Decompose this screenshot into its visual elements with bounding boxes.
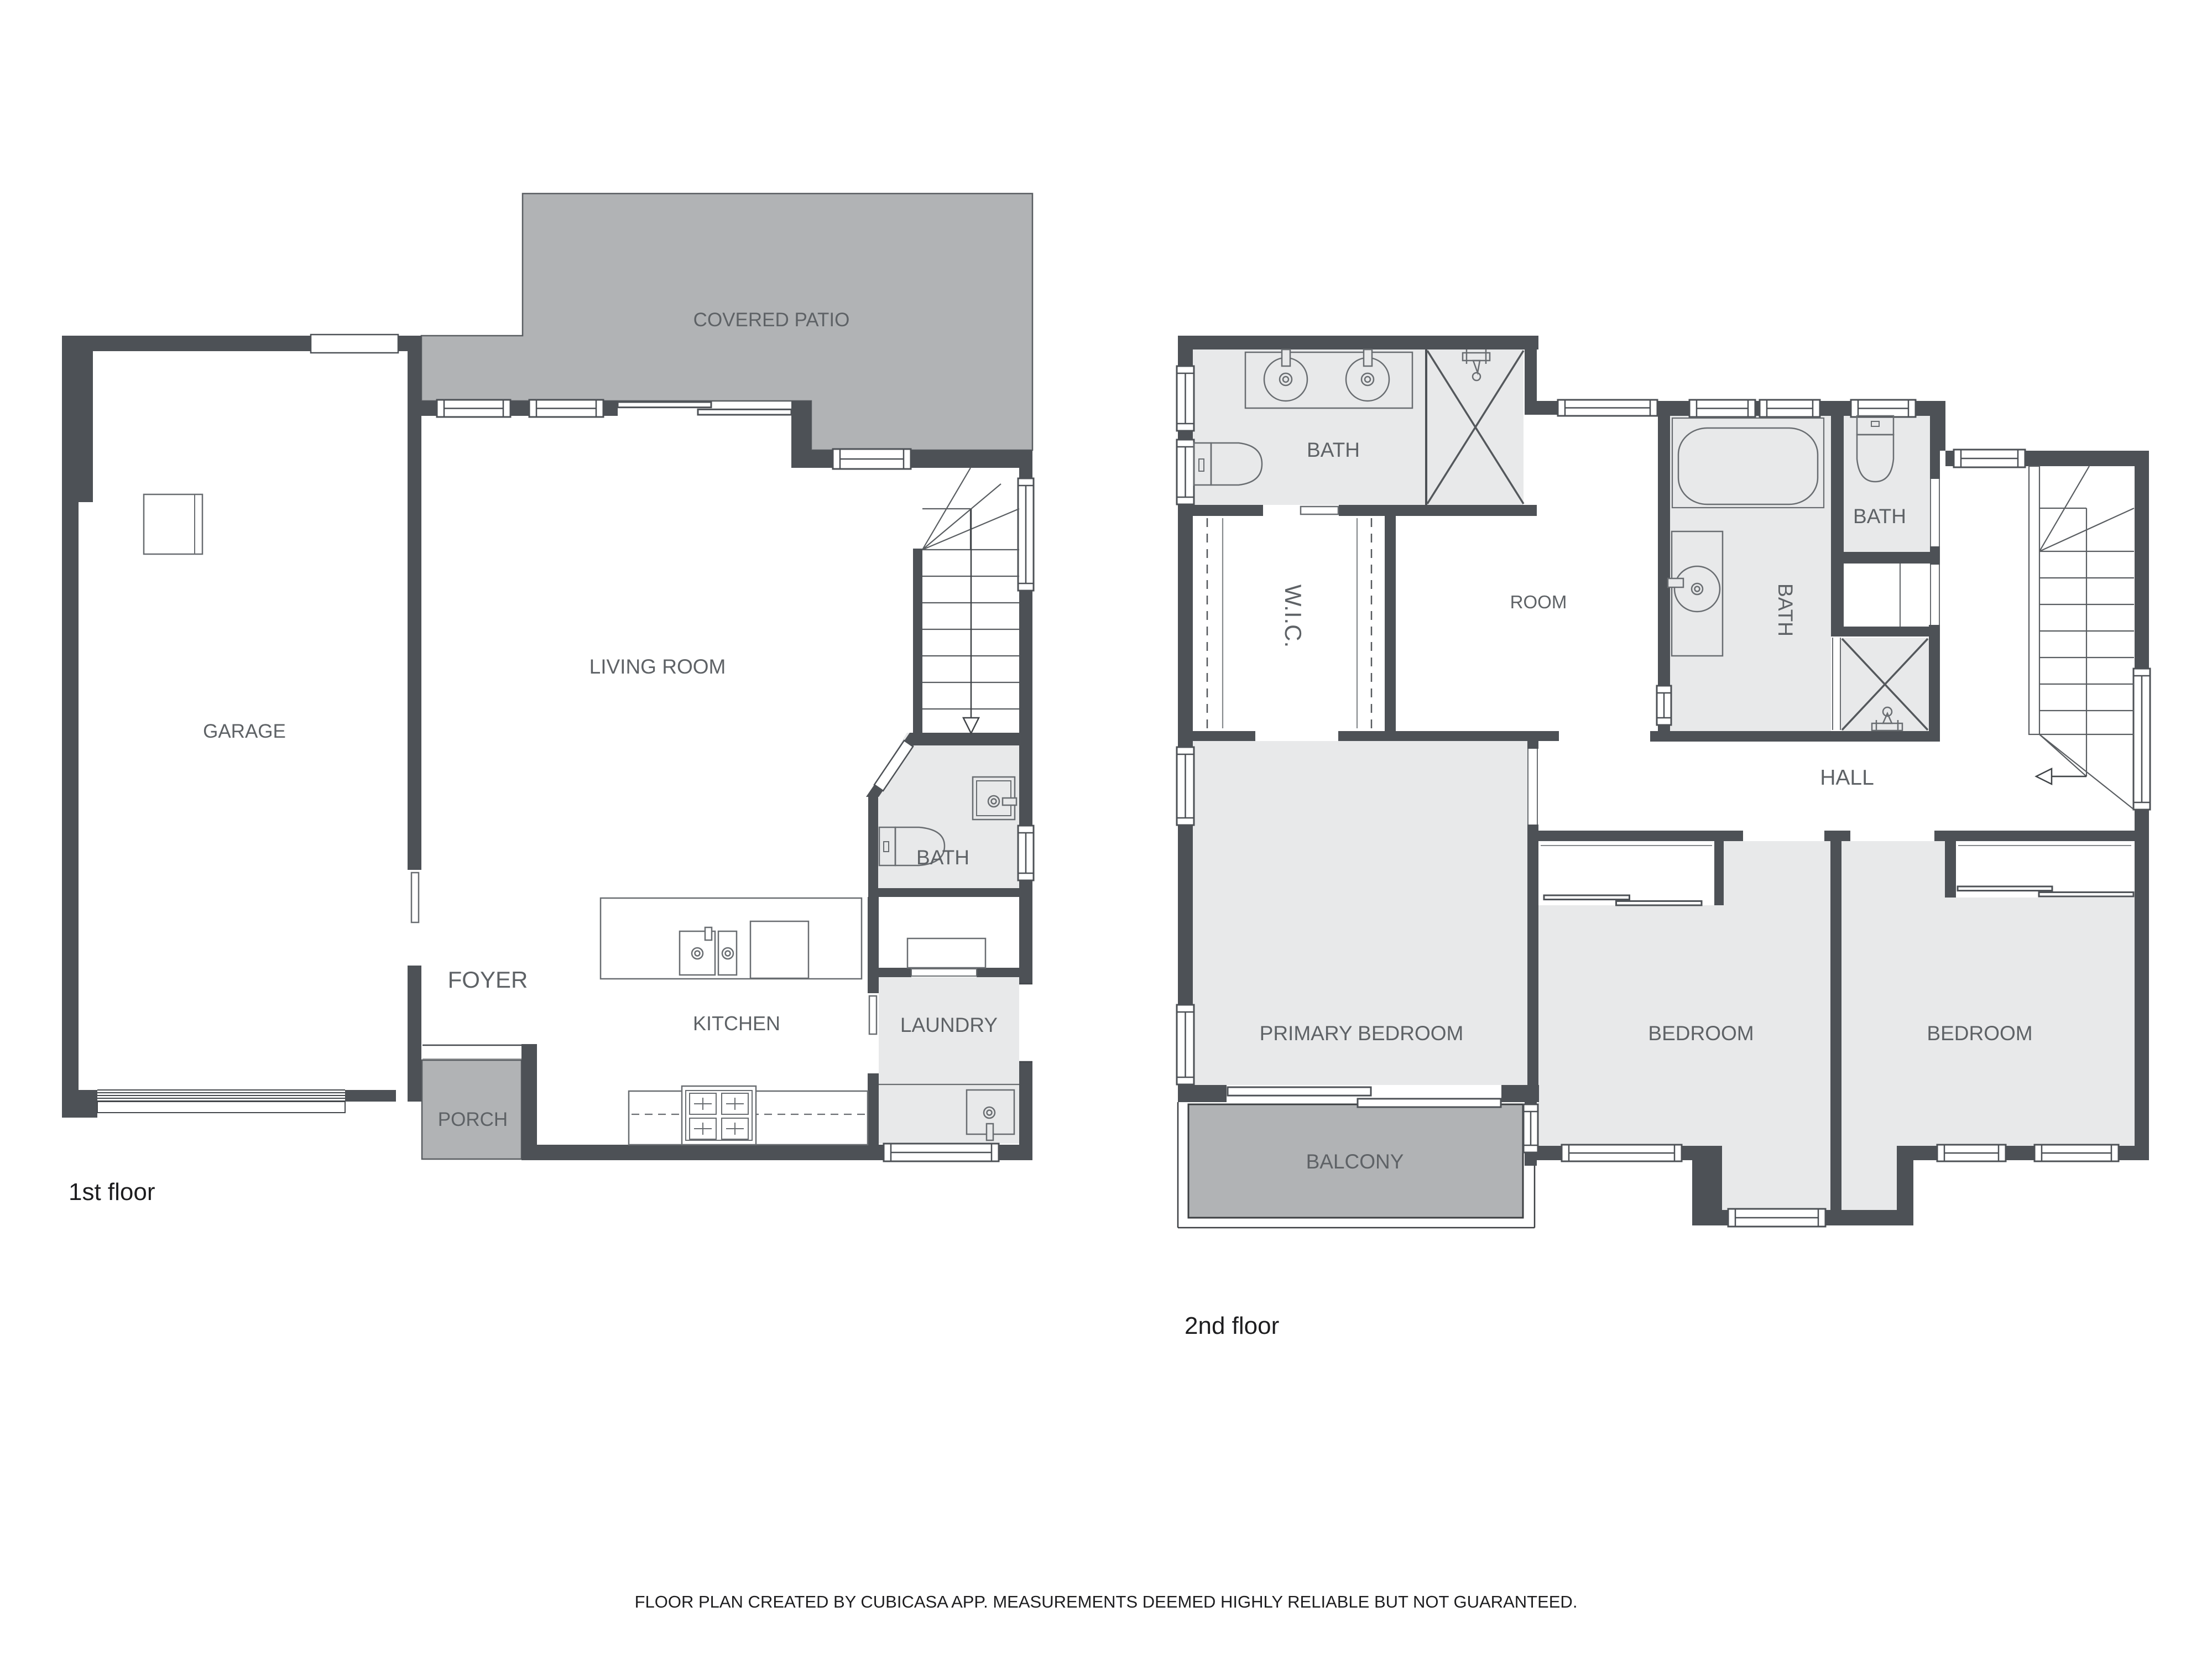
svg-text:HALL: HALL xyxy=(1820,766,1874,790)
svg-text:GARAGE: GARAGE xyxy=(203,721,286,742)
svg-text:BATH: BATH xyxy=(916,846,969,869)
svg-text:PRIMARY BEDROOM: PRIMARY BEDROOM xyxy=(1260,1022,1464,1045)
svg-text:LIVING ROOM: LIVING ROOM xyxy=(589,655,726,678)
svg-text:BEDROOM: BEDROOM xyxy=(1648,1022,1754,1045)
svg-text:FLOOR PLAN CREATED BY CUBICASA: FLOOR PLAN CREATED BY CUBICASA APP. MEAS… xyxy=(635,1592,1578,1611)
svg-text:PORCH: PORCH xyxy=(438,1109,508,1130)
svg-text:BATH: BATH xyxy=(1853,505,1906,528)
svg-text:BALCONY: BALCONY xyxy=(1306,1150,1404,1173)
svg-text:LAUNDRY: LAUNDRY xyxy=(900,1014,998,1036)
svg-text:W.I.C.: W.I.C. xyxy=(1280,585,1306,648)
svg-text:2nd floor: 2nd floor xyxy=(1185,1312,1279,1339)
svg-text:BATH: BATH xyxy=(1774,583,1797,637)
svg-text:BEDROOM: BEDROOM xyxy=(1927,1022,2032,1045)
svg-text:COVERED PATIO: COVERED PATIO xyxy=(693,309,850,331)
svg-text:BATH: BATH xyxy=(1307,439,1360,461)
svg-text:1st floor: 1st floor xyxy=(69,1178,155,1206)
svg-text:ROOM: ROOM xyxy=(1510,592,1567,612)
svg-text:KITCHEN: KITCHEN xyxy=(693,1012,780,1035)
svg-text:FOYER: FOYER xyxy=(448,967,528,993)
